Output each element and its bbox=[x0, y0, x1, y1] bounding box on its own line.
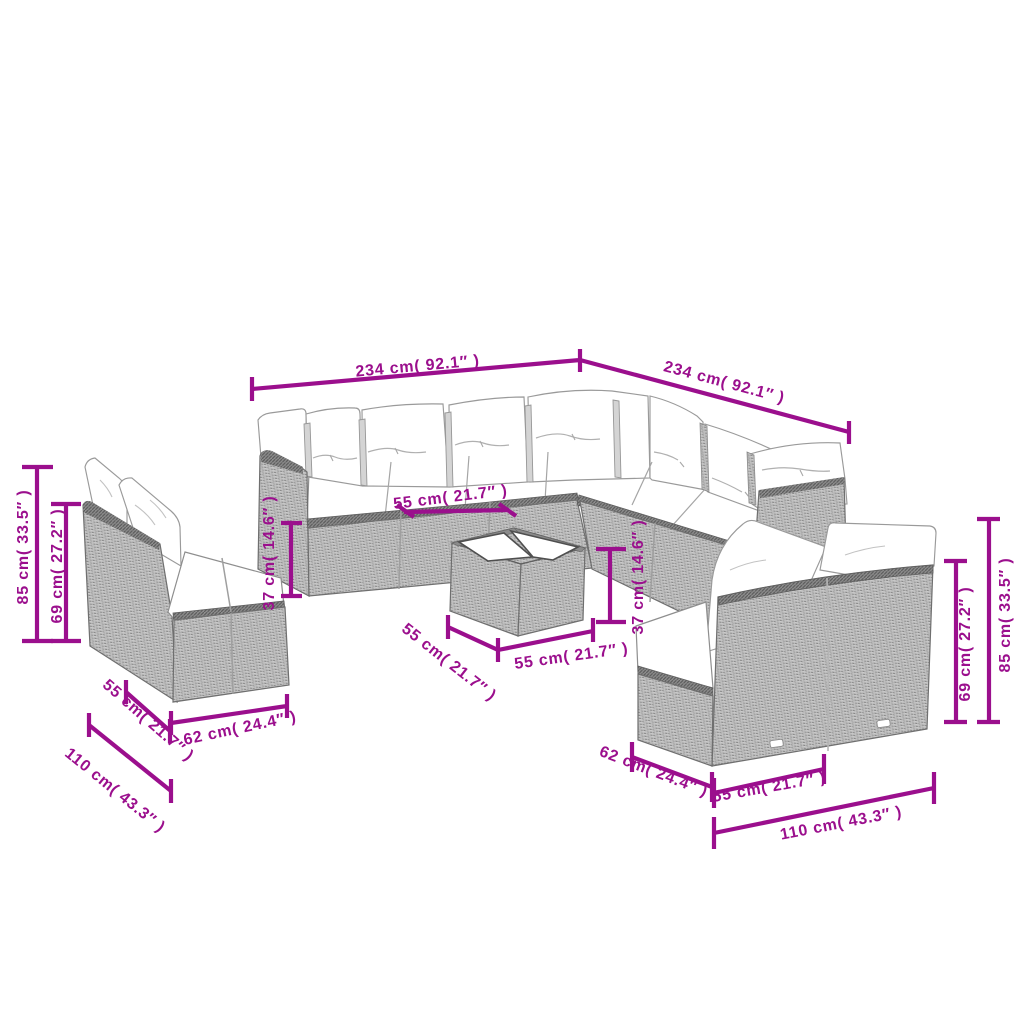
svg-text:85 cm( 33.5″ ): 85 cm( 33.5″ ) bbox=[15, 490, 32, 605]
svg-text:85 cm( 33.5″ ): 85 cm( 33.5″ ) bbox=[997, 558, 1014, 673]
svg-text:69 cm( 27.2″ ): 69 cm( 27.2″ ) bbox=[49, 509, 66, 624]
svg-text:37 cm( 14.6″ ): 37 cm( 14.6″ ) bbox=[630, 520, 647, 635]
svg-text:37 cm( 14.6″ ): 37 cm( 14.6″ ) bbox=[261, 496, 278, 611]
svg-text:69 cm( 27.2″ ): 69 cm( 27.2″ ) bbox=[957, 587, 974, 702]
